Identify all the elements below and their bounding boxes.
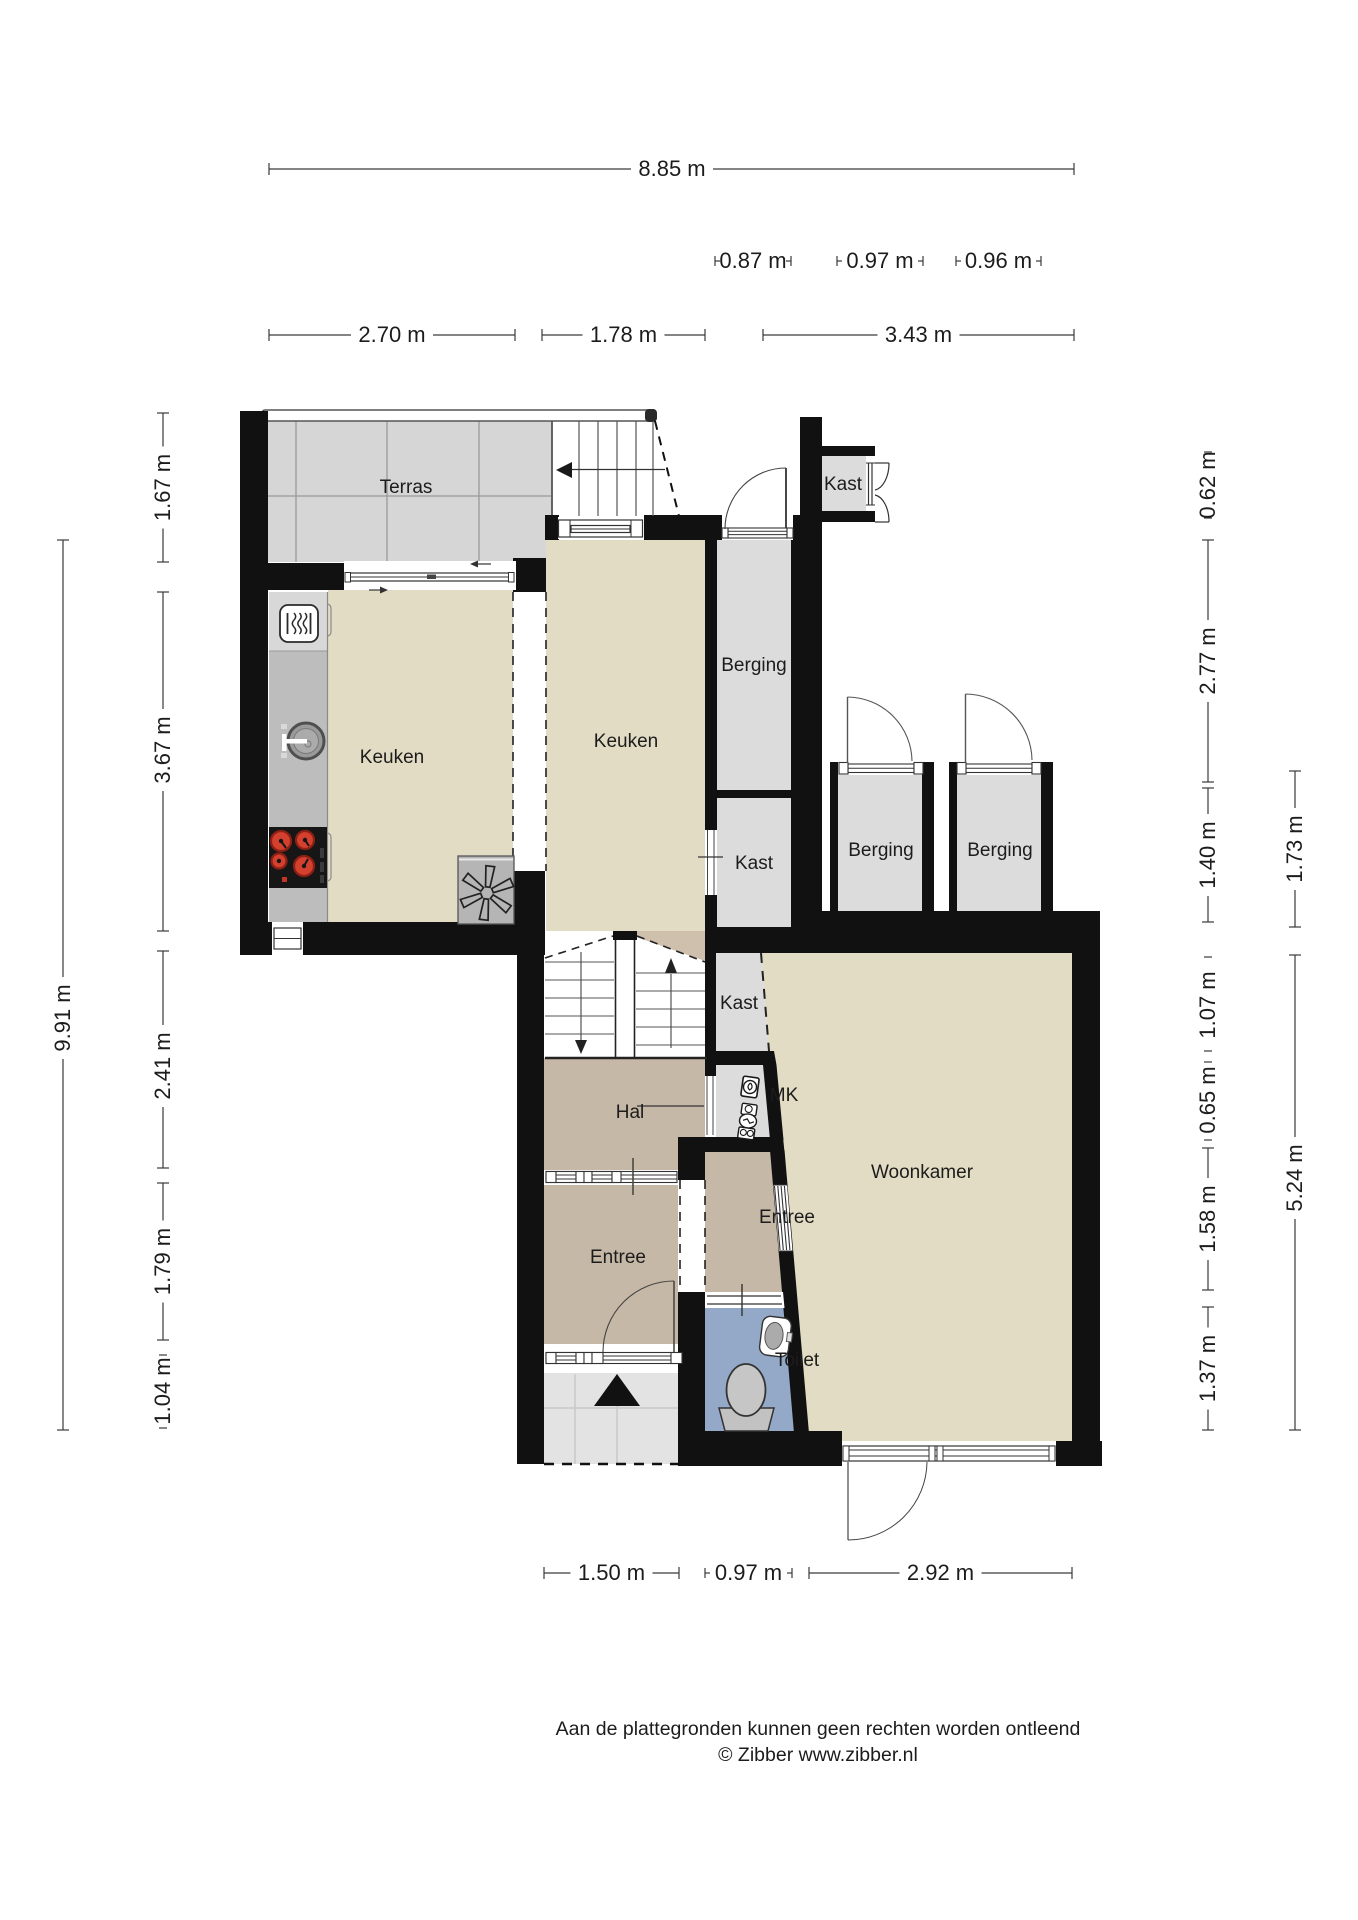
svg-text:© Zibber www.zibber.nl: © Zibber www.zibber.nl [718,1744,918,1766]
svg-text:2.41 m: 2.41 m [150,1032,175,1099]
svg-text:0.96 m: 0.96 m [965,248,1032,273]
svg-text:1.07 m: 1.07 m [1195,971,1220,1038]
svg-text:Kast: Kast [824,474,863,495]
svg-text:2.77 m: 2.77 m [1195,627,1220,694]
svg-text:5.24 m: 5.24 m [1282,1144,1307,1211]
svg-text:9.91 m: 9.91 m [50,984,75,1051]
svg-text:Woonkamer: Woonkamer [871,1162,974,1183]
svg-text:Berging: Berging [967,840,1033,861]
svg-text:1.73 m: 1.73 m [1282,815,1307,882]
svg-text:Toilet: Toilet [775,1350,820,1371]
svg-text:Aan de plattegronden kunnen ge: Aan de plattegronden kunnen geen rechten… [556,1718,1081,1740]
svg-text:Kast: Kast [720,993,759,1014]
svg-text:0.97 m: 0.97 m [715,1560,782,1585]
svg-text:0.65 m: 0.65 m [1195,1066,1220,1133]
svg-text:0.87 m: 0.87 m [719,248,786,273]
svg-text:0.62 m: 0.62 m [1195,451,1220,518]
svg-text:Entree: Entree [759,1207,815,1228]
svg-text:Keuken: Keuken [360,747,424,768]
svg-text:Berging: Berging [848,840,914,861]
svg-text:1.67 m: 1.67 m [150,454,175,521]
svg-text:0.97 m: 0.97 m [846,248,913,273]
svg-text:Kast: Kast [735,853,774,874]
svg-text:1.78 m: 1.78 m [590,322,657,347]
svg-text:2.70 m: 2.70 m [358,322,425,347]
svg-text:Berging: Berging [721,655,787,676]
svg-text:1.79 m: 1.79 m [150,1228,175,1295]
svg-text:Terras: Terras [380,477,433,498]
svg-text:2.92 m: 2.92 m [907,1560,974,1585]
svg-text:8.85 m: 8.85 m [638,156,705,181]
svg-text:Entree: Entree [590,1247,646,1268]
svg-text:1.40 m: 1.40 m [1195,821,1220,888]
svg-text:1.37 m: 1.37 m [1195,1335,1220,1402]
svg-text:1.58 m: 1.58 m [1195,1185,1220,1252]
svg-text:3.43 m: 3.43 m [885,322,952,347]
svg-text:MK: MK [770,1085,799,1106]
svg-text:Hal: Hal [616,1102,645,1123]
svg-text:3.67 m: 3.67 m [150,716,175,783]
svg-text:Keuken: Keuken [594,731,658,752]
svg-text:1.50 m: 1.50 m [578,1560,645,1585]
svg-text:1.04 m: 1.04 m [150,1357,175,1424]
